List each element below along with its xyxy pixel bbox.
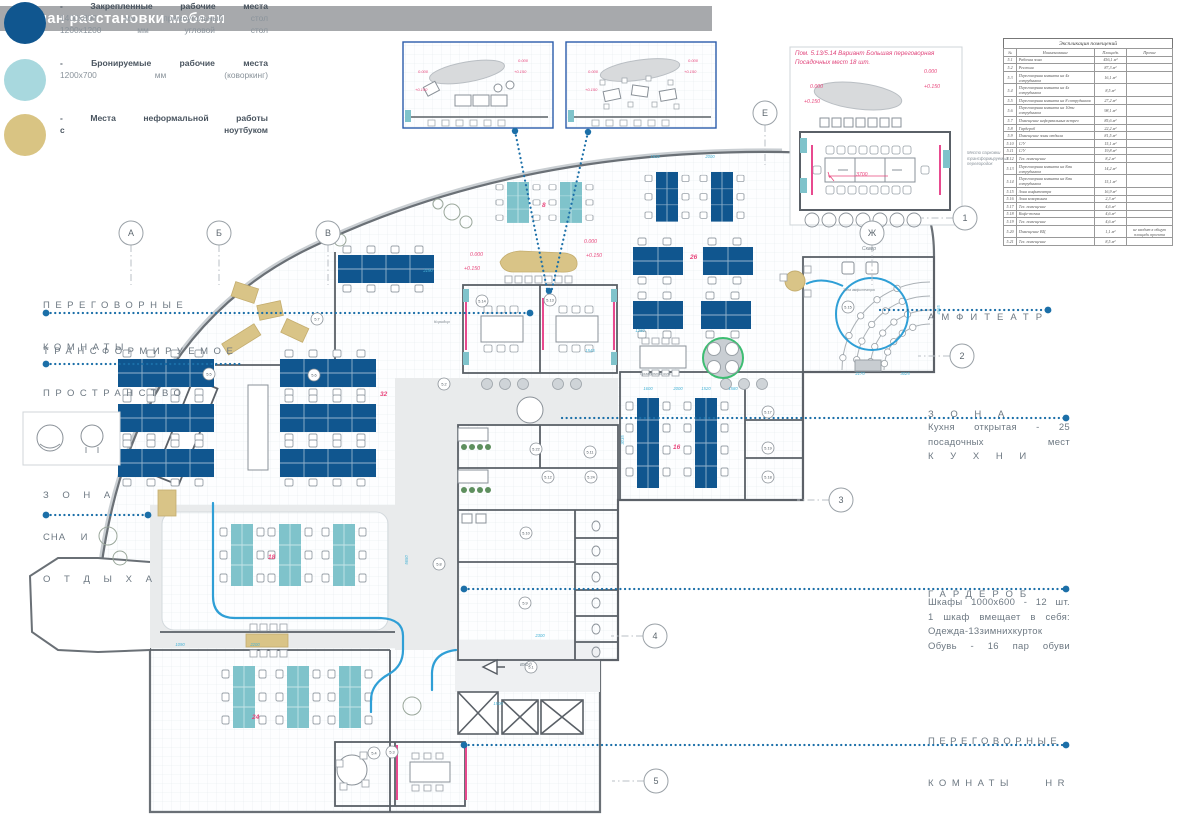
amphitheater-seat: [859, 338, 865, 344]
legend-item-sub: с ноутбуком: [60, 124, 268, 136]
explication-row: 5.1Рабочая зона456,1 м²: [1004, 56, 1173, 64]
room-number: 5.12: [544, 476, 551, 480]
amphitheater-seat: [881, 360, 887, 366]
room-number: 5.8: [436, 563, 441, 567]
room-number: 5.11: [586, 451, 593, 455]
plan-text-label: Сквер: [862, 246, 876, 252]
grid-bubble-label: 4: [652, 631, 657, 641]
elevation-mark: 0.000: [418, 69, 429, 74]
fixed-workplace-swatch: [4, 2, 46, 44]
dimension-label: 2000: [672, 386, 683, 391]
explication-row: 5.18Кофе-точка4,6 м²: [1004, 210, 1173, 218]
explication-row: 5.4Переговорная комната на 4х сотруднико…: [1004, 84, 1173, 97]
dimension-label: 3025: [900, 371, 910, 376]
room-number: 5.10: [522, 532, 529, 536]
dimension-label: 2200: [249, 642, 260, 647]
explication-row: 5.6Переговорная комната на 10ти сотрудни…: [1004, 104, 1173, 117]
explication-row: 5.17Тех. помещение4,6 м²: [1004, 203, 1173, 211]
elevation-mark: +0.150: [514, 69, 527, 74]
bookable-workplace-swatch: [4, 59, 46, 101]
dimension-label: 1600: [643, 386, 653, 391]
workplace-count: 26: [689, 254, 698, 261]
room-number: 5.19: [764, 447, 771, 451]
elevation-mark: 0.000: [810, 84, 823, 90]
explication-row: 5.7Помещение неформальных встреч85,6 м²: [1004, 117, 1173, 125]
explication-row: 5.14Переговорная комната на 8ми сотрудни…: [1004, 175, 1173, 188]
room-number: 5.9: [522, 602, 527, 606]
dimension-label: 1925: [650, 154, 660, 159]
dimension-label: 1545: [585, 348, 595, 353]
dimension-label: 1580: [728, 386, 738, 391]
grid-bubble-label: Б: [216, 228, 222, 238]
workplace-count: 16: [673, 444, 681, 451]
variant-annotation: Пом. 5.13/5.14 Вариант Большая переговор…: [795, 49, 965, 67]
workplace-count: 8: [542, 202, 546, 209]
explication-row: 5.21Тех. помещение8,5 м²: [1004, 238, 1173, 246]
explication-row: 5.19Тех. помещение4,6 м²: [1004, 218, 1173, 226]
elevation-mark: +0.150: [924, 84, 940, 90]
zone-label-sleep-rest: З О Н А СНА И О Т Д Ы Х А: [43, 461, 157, 615]
explication-row: 5.5Переговорная комната на 8 сотрудников…: [1004, 96, 1173, 104]
grid-bubble-label: А: [128, 228, 134, 238]
workplace-count: 32: [380, 391, 388, 398]
inset-variant-2: [566, 42, 716, 128]
elevation-mark: +0.150: [586, 253, 602, 259]
room-number: 5.4: [371, 752, 376, 756]
legend-item-sub: 1400х800 мм прямоугольный стол: [60, 12, 268, 24]
amphitheater-seat: [874, 297, 880, 303]
elevation-mark: +0.150: [585, 87, 598, 92]
explication-row: 5.10С/У15,1 м²: [1004, 139, 1173, 147]
zone-label-amphitheater: АМФИТЕАТР: [928, 283, 1049, 353]
legend-item-title: - Закрепленные рабочие места: [60, 0, 268, 12]
explication-row: 5.11С/У19,8 м²: [1004, 147, 1173, 155]
explication-row: 5.13Переговорная комната на 8ми сотрудни…: [1004, 162, 1173, 175]
dimension-label: 1280: [635, 328, 645, 333]
room-number: 5.14: [478, 300, 485, 304]
amphitheater-seat: [840, 355, 846, 361]
elevation-mark: +0.150: [804, 99, 820, 105]
grid-bubble-label: 3: [838, 495, 843, 505]
dimension-label: 2190: [422, 268, 433, 273]
room-number: 5.6: [311, 374, 316, 378]
workplace-count: 18: [268, 554, 276, 561]
workplace-count: 24: [251, 714, 260, 721]
informal-workplace-swatch: [4, 114, 46, 156]
room-number: 5.18: [764, 476, 771, 480]
room-number: 5.3: [389, 751, 394, 755]
kitchen-description: Кухня открытая - 25 посадочных мест: [928, 421, 1070, 450]
elevation-mark: 0.000: [518, 58, 529, 63]
amphitheater-seat: [846, 332, 852, 338]
amphitheater-seat: [882, 308, 888, 314]
grid-bubble-label: В: [325, 228, 331, 238]
plan-text-label: вход: [520, 662, 532, 668]
explication-row: 5.2Ресепшн87,3 м²: [1004, 64, 1173, 72]
room-number: 5.15: [844, 306, 851, 310]
elevation-mark: +0.150: [415, 87, 428, 92]
legend-item-sub: 1200х1200 мм угловой стол: [60, 24, 268, 36]
dimension-label: 1090: [175, 642, 185, 647]
legend-item-title: - Места неформальной работы: [60, 112, 268, 124]
elevation-mark: 0.000: [584, 239, 597, 245]
room-number: 5.17: [764, 411, 771, 415]
dimension-label: 2000: [704, 154, 715, 159]
elevation-mark: 3700: [856, 172, 868, 178]
grid-bubble-label: 1: [962, 213, 967, 223]
amphitheater-seat: [880, 330, 886, 336]
room-number: 5.24: [587, 476, 594, 480]
grid-bubble-label: Е: [762, 108, 768, 118]
legend-item-sub: 1200х700 мм (коворкинг): [60, 69, 268, 81]
room-number: 5.13: [546, 299, 553, 303]
wardrobe-description: Шкафы 1000х600 - 12 шт. 1 шкаф вмещает в…: [928, 596, 1070, 654]
room-number: 5.22: [532, 448, 539, 452]
grid-bubble-label: 5: [653, 776, 658, 786]
explication-row: 5.15Зона амфитеатра16,9 м²: [1004, 187, 1173, 195]
elevation-mark: 0.000: [588, 69, 599, 74]
explication-row: 5.12Тех. помещение8,2 м²: [1004, 155, 1173, 163]
legend-item-title: - Бронируемые рабочие места: [60, 57, 268, 69]
room-number: 5.2: [441, 383, 446, 387]
explication-row: 5.8Гардероб22,2 м²: [1004, 124, 1173, 132]
plan-text-label: Примерочная зона: [640, 372, 670, 376]
elevation-mark: 0.000: [470, 252, 483, 258]
grid-bubble-label: Ж: [868, 228, 877, 238]
elevation-mark: 0.000: [688, 58, 699, 63]
elevation-mark: +0.150: [464, 266, 480, 272]
elevation-mark: 0.000: [924, 69, 937, 75]
amphitheater-seat: [891, 319, 897, 325]
zone-label-meeting-rooms-hr: ПЕРЕГОВОРНЫЕ КОМНАТЫ HR: [928, 707, 1070, 819]
explication-row: 5.16Зона коворкинга2,3 м²: [1004, 195, 1173, 203]
room-explication-table: Экспликация помещений № Наименование Пло…: [1003, 38, 1173, 246]
dimension-label: 5650: [404, 555, 409, 565]
room-number: 5.7: [314, 318, 319, 322]
plan-text-label: Зона амфитеатра: [843, 288, 875, 292]
dimension-label: 2300: [534, 633, 545, 638]
explication-row: 5.9Помещение зоны отдыха81,5 м²: [1004, 132, 1173, 140]
explication-grid: № Наименование Площадь Прочие 5.1Рабочая…: [1003, 48, 1173, 246]
dimension-label: 2170: [854, 371, 865, 376]
elevation-mark: +0.150: [684, 69, 697, 74]
plan-text-label: Коридор: [434, 319, 450, 324]
amphitheater-seat: [857, 313, 863, 319]
dimension-label: 3035: [620, 435, 625, 445]
amphitheater-seat: [884, 349, 890, 355]
zone-label-transformable-space: ТРАНСФОРМИРУЕМОЕ ПРОСТРАНСТВО: [43, 317, 238, 429]
dimension-label: 1520: [701, 386, 711, 391]
inset-variant-1: [403, 42, 553, 128]
dimension-label: 1500: [493, 701, 503, 706]
explication-title: Экспликация помещений: [1003, 38, 1173, 48]
furniture-plan-page: АБВЕЖ12345 5.145.135.75.55.65.25.155.175…: [0, 0, 1177, 828]
explication-row: 5.20Помещение ВЦ1,1 м²не входит в общую …: [1004, 225, 1173, 238]
amphitheater-seat: [868, 321, 874, 327]
amphitheater-seat: [910, 324, 916, 330]
explication-row: 5.3Переговорная комната на 4х сотруднико…: [1004, 71, 1173, 84]
